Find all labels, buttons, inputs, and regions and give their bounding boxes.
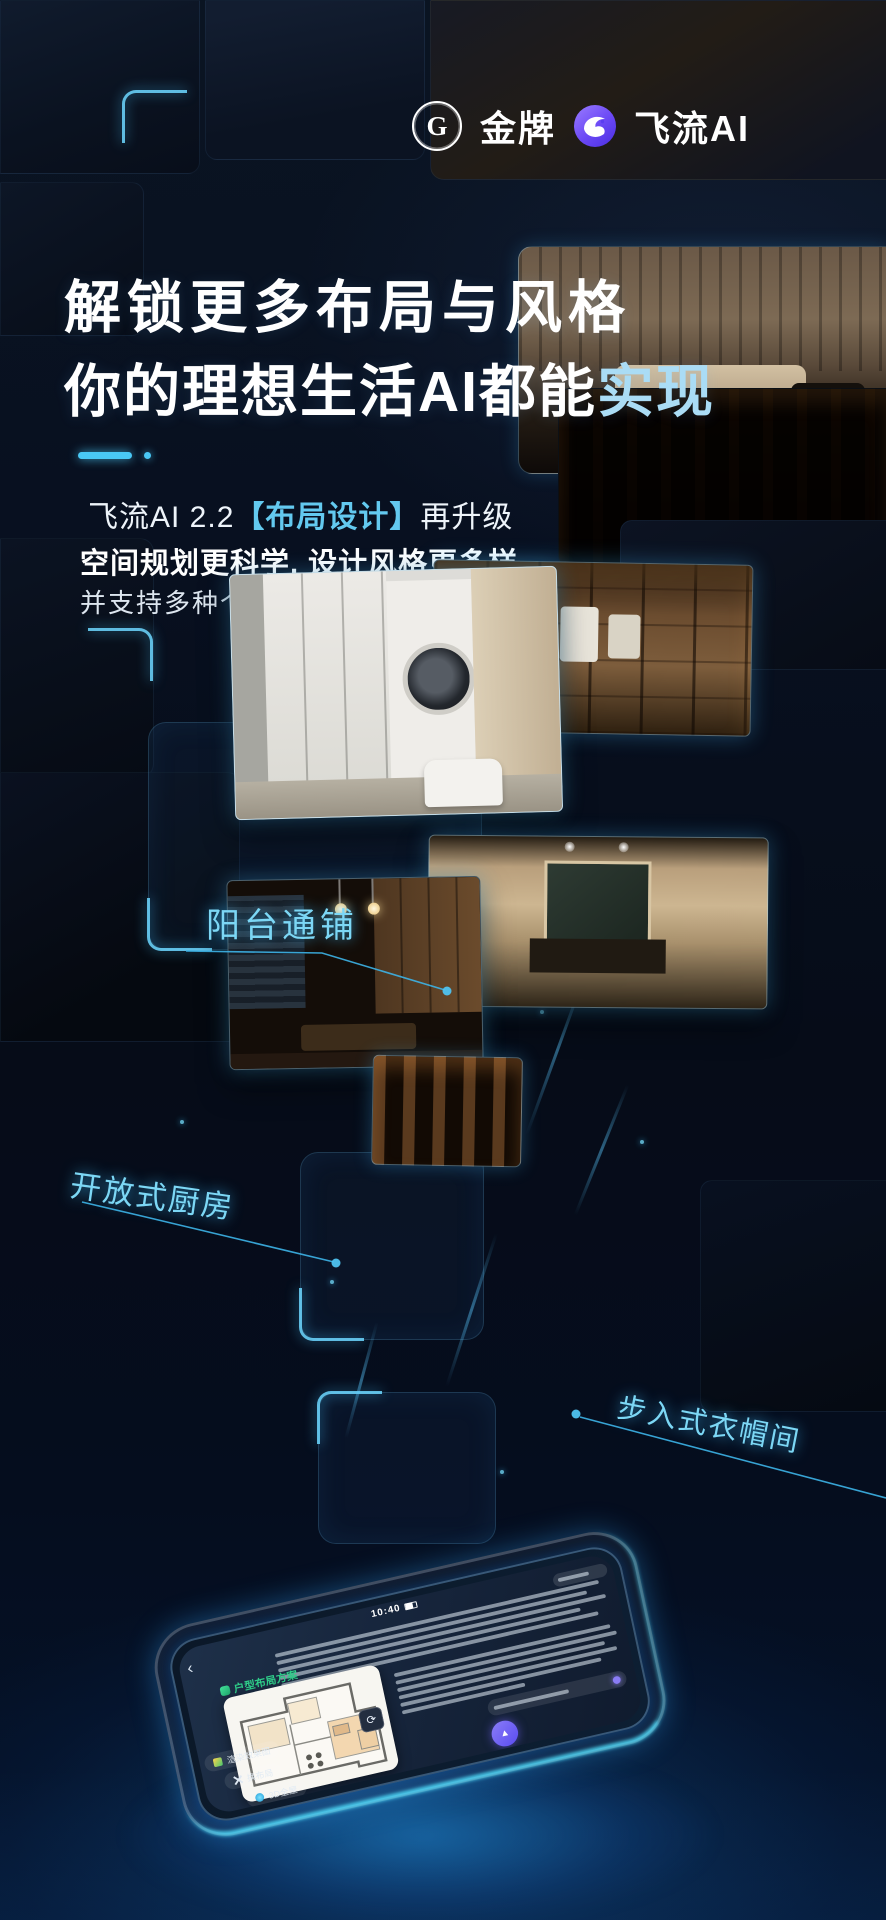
closet-clothes	[560, 607, 599, 662]
glow-bracket-4	[299, 1288, 364, 1341]
action-chips: 渲染效果图 换布局 3D全屋	[203, 1735, 307, 1816]
subtitle-highlight: 【布局设计】	[234, 501, 420, 534]
balcony-cabinet	[262, 571, 391, 784]
bathroom-vanity	[530, 938, 665, 973]
spotlight	[565, 842, 575, 852]
3d-icon	[254, 1792, 264, 1802]
feiliu-swoosh	[574, 105, 616, 147]
divider-dot	[144, 452, 151, 459]
particle	[330, 1280, 334, 1284]
callout-kitchen: 开放式厨房	[68, 1160, 238, 1228]
brand-logos: G 金牌 飞流AI	[412, 100, 750, 152]
floor-reflection	[0, 1770, 886, 1920]
poster-canvas: G 金牌 飞流AI 解锁更多布局与风格 你的理想生活AI都能实现 飞流AI 2.…	[0, 0, 886, 1920]
send-fab-icon: ▲	[499, 1727, 511, 1739]
goldenhome-logo-text: 金牌	[480, 100, 556, 152]
plan-title-icon	[219, 1685, 231, 1697]
accent-divider	[78, 452, 151, 459]
send-fab[interactable]: ▲	[489, 1718, 520, 1749]
bg-photo-top-left	[0, 0, 200, 174]
photo-small-wardrobe	[371, 1055, 523, 1168]
balcony-chair	[424, 759, 503, 807]
closet-clothes	[608, 614, 641, 659]
glow-bracket-1	[122, 90, 187, 143]
subtitle-line1: 飞流AI 2.2【布局设计】再升级	[88, 492, 513, 536]
battery-icon	[404, 1601, 418, 1610]
glow-bracket-3	[147, 898, 212, 951]
subtitle-prefix: 飞流AI 2.2	[88, 501, 234, 534]
bg-photo-top-right	[430, 0, 886, 180]
particle	[540, 1010, 544, 1014]
render-icon	[213, 1757, 223, 1767]
status-time: 10:40	[370, 1603, 402, 1620]
hint-dot-icon	[612, 1675, 621, 1684]
layout-icon	[233, 1774, 243, 1784]
pendant-stem	[371, 879, 373, 905]
chip-label: 3D全屋	[267, 1782, 298, 1801]
bathroom-mirror	[544, 860, 652, 945]
goldenhome-logo-icon: G	[412, 101, 462, 151]
headline-line2: 你的理想生活AI都能实现	[64, 346, 715, 428]
headline-line1: 解锁更多布局与风格	[64, 262, 631, 344]
feiliu-logo-text: 飞流AI	[634, 100, 750, 152]
glass-pane-mid	[300, 1152, 484, 1340]
callout-balcony: 阳台通铺	[206, 898, 358, 947]
chip-label: 换布局	[246, 1766, 275, 1784]
dining-table	[300, 1023, 416, 1051]
particle	[640, 1140, 644, 1144]
spotlight	[619, 842, 629, 852]
subtitle-suffix: 再升级	[420, 501, 513, 534]
headline-line2-strong: AI都能	[418, 360, 597, 424]
bg-photo-right-lower	[700, 1180, 886, 1412]
glow-bracket-2	[88, 628, 153, 681]
kitchen-cabinets	[374, 877, 482, 1014]
light-beam	[574, 1085, 629, 1216]
feiliu-logo-icon	[574, 105, 616, 147]
balcony-floor	[235, 774, 562, 819]
back-icon[interactable]: ‹	[186, 1660, 195, 1677]
photo-balcony-laundry	[229, 566, 563, 821]
divider-bar	[78, 452, 132, 459]
glass-pane-low	[318, 1392, 496, 1544]
particle	[180, 1120, 184, 1124]
particle	[500, 1470, 504, 1474]
headline-line2-accent: 实现	[597, 360, 715, 424]
headline-line2-prefix: 你的理想生活	[64, 360, 418, 424]
bg-photo-top-center	[205, 0, 425, 160]
